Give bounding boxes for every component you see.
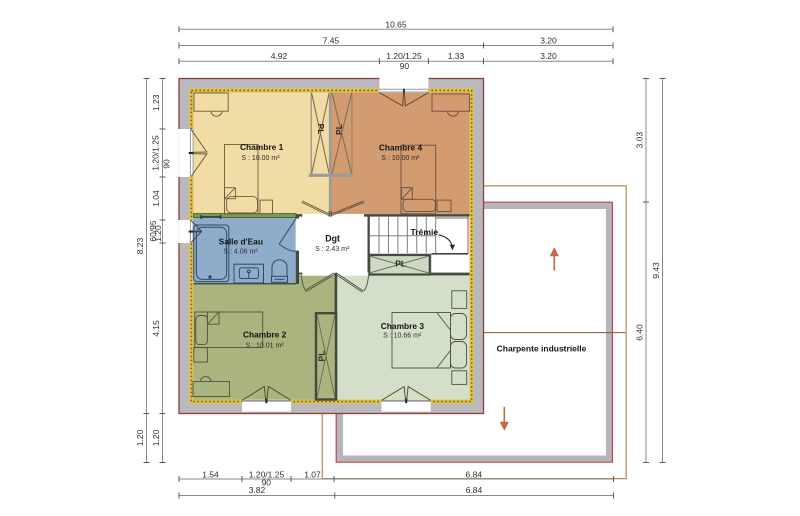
svg-text:S : 10.01 m²: S : 10.01 m² (246, 342, 285, 349)
svg-text:1.20/1.25: 1.20/1.25 (386, 51, 422, 61)
svg-text:1.20: 1.20 (151, 429, 161, 446)
svg-text:1.04: 1.04 (151, 190, 161, 207)
svg-text:3.20: 3.20 (540, 36, 557, 46)
svg-text:7.45: 7.45 (323, 36, 340, 46)
svg-text:Charpente industrielle: Charpente industrielle (497, 343, 587, 353)
svg-text:S : 10.00 m²: S : 10.00 m² (241, 155, 280, 162)
svg-text:Chambre 1: Chambre 1 (240, 142, 284, 152)
svg-text:Trémie: Trémie (410, 227, 438, 237)
svg-text:PL: PL (317, 351, 327, 362)
svg-text:1.33: 1.33 (448, 51, 465, 61)
svg-text:S : 10.66 m²: S : 10.66 m² (383, 333, 422, 340)
svg-text:4.92: 4.92 (271, 51, 288, 61)
svg-text:PL: PL (395, 259, 406, 269)
svg-text:PL: PL (334, 124, 344, 135)
svg-text:9.43: 9.43 (651, 262, 661, 279)
svg-text:90: 90 (162, 159, 172, 169)
svg-text:Chambre 2: Chambre 2 (243, 330, 287, 340)
svg-text:Dgt: Dgt (325, 234, 340, 244)
svg-text:1.23: 1.23 (151, 94, 161, 111)
svg-text:Salle d'Eau: Salle d'Eau (219, 237, 263, 247)
svg-text:10.65: 10.65 (385, 19, 407, 29)
svg-text:3.82: 3.82 (249, 485, 266, 495)
svg-text:4.15: 4.15 (151, 320, 161, 337)
svg-text:3.20: 3.20 (540, 51, 557, 61)
svg-text:1.20: 1.20 (153, 225, 163, 242)
svg-text:90: 90 (400, 61, 410, 71)
svg-text:1.20/1.25: 1.20/1.25 (151, 135, 161, 171)
svg-text:Chambre 4: Chambre 4 (379, 143, 423, 153)
svg-text:1.20: 1.20 (135, 429, 145, 446)
svg-text:S : 4.06 m²: S : 4.06 m² (223, 248, 258, 255)
svg-text:Chambre 3: Chambre 3 (381, 321, 425, 331)
svg-text:6.40: 6.40 (635, 324, 645, 341)
svg-text:8.23: 8.23 (135, 237, 145, 254)
svg-text:6.84: 6.84 (466, 485, 483, 495)
svg-text:S : 2.43 m²: S : 2.43 m² (315, 246, 350, 253)
svg-text:1.54: 1.54 (202, 469, 219, 479)
svg-text:PL: PL (316, 124, 326, 135)
svg-text:S : 10.00 m²: S : 10.00 m² (381, 155, 420, 162)
svg-text:1.07: 1.07 (304, 469, 321, 479)
svg-text:3.03: 3.03 (635, 132, 645, 149)
svg-text:6.84: 6.84 (466, 469, 483, 479)
